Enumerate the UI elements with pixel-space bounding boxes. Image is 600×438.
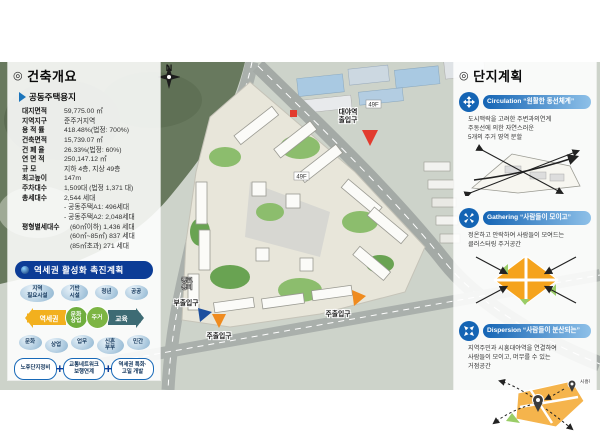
double-circle-icon: ◎ <box>459 69 469 82</box>
bubble: 신혼 부부 <box>97 337 124 354</box>
dispersion-bar: Dispersion “사람들이 분산되는” <box>483 324 591 338</box>
site-plan-title: 단지계획 <box>473 66 523 85</box>
svg-text:주출입구: 주출입구 <box>325 309 351 318</box>
circulation-figure <box>459 144 591 201</box>
bubble: 문화 <box>19 335 42 350</box>
table-row: 건축면적15,739.07 ㎡ <box>22 136 155 146</box>
unit-breakdown: - 공동주택A1: 496세대 <box>64 203 155 213</box>
svg-text:종교: 종교 <box>182 277 193 284</box>
svg-text:출입구: 출입구 <box>339 115 359 124</box>
size-breakdown: (60㎡~85㎡) 837 세대 <box>70 232 155 242</box>
station-figure-label: 시흥대야역 <box>580 378 590 385</box>
table-row: 평형별세대수 (60㎡이하) 1,436 세대 <box>22 223 155 233</box>
presentation-slide: 49F 49F 대야역 출입구 주출입구 주출입구 <box>0 0 600 438</box>
strategy-box: 교통네트워크 보행연계 <box>63 358 106 380</box>
circulation-desc: 도시맥락을 고려한 주변과의연계 주동선에 의한 자연스러운 5개의 주거 영역… <box>468 116 589 143</box>
bubble: 공공 <box>125 285 148 300</box>
flow-left-arrow: 역세권 <box>33 310 66 325</box>
flow-node: 문화 상업 <box>65 306 88 329</box>
site-plan-panel: ◎ 단지계획 Circulation “원활한 동선체계” 도시맥락을 고려한 … <box>454 62 596 390</box>
table-row: 용 적 률418.48%(법정: 700%) <box>22 126 155 136</box>
table-row: 총세대수2,544 세대 <box>22 194 155 204</box>
bubble: 상업 <box>45 338 68 353</box>
north-compass: N <box>158 64 180 73</box>
gathering-icon <box>459 208 479 228</box>
plus-icon: + <box>56 362 64 375</box>
station-plan-header: 역세권 활성화 촉진계획 <box>15 261 153 279</box>
double-circle-icon: ◎ <box>13 69 23 82</box>
strategy-box: 노후단지정비 <box>14 358 57 380</box>
size-breakdown: (85㎡초과) 271 세대 <box>70 242 155 252</box>
svg-text:용지: 용지 <box>182 283 193 291</box>
svg-text:주출입구: 주출입구 <box>206 331 232 340</box>
bubble: 지역 필요시설 <box>20 284 54 302</box>
north-compass-icon <box>158 64 180 90</box>
table-row: 대지면적59,775.00 ㎡ <box>22 107 155 117</box>
station-plan-bottom-bubbles: 문화 상업 업무 신혼 부부 민간 <box>17 334 151 351</box>
table-row: 지역지구준주거지역 <box>22 117 155 127</box>
bubble: 업무 <box>71 335 94 350</box>
table-row: 규 모지하 4층, 지상 49층 <box>22 165 155 175</box>
flow-node: 주거 <box>86 306 109 329</box>
strategy-box: 역세권 특화· 고밀 개발 <box>111 358 154 380</box>
bubble: 기반 시설 <box>61 284 88 301</box>
building-overview-table: 대지면적59,775.00 ㎡ 지역지구준주거지역 용 적 률418.48%(법… <box>22 107 155 252</box>
flow-right-arrow: 교육 <box>108 310 136 325</box>
table-row: 주차대수1,509대 (법정 1,371 대) <box>22 184 155 194</box>
site-plan-header: ◎ 단지계획 <box>459 66 591 85</box>
housing-site-subtitle: 공동주택용지 <box>19 91 155 103</box>
gathering-figure <box>459 251 591 314</box>
triangle-bullet-icon <box>19 92 26 102</box>
gathering-section-header: Gathering “사람들이 모이고” <box>459 208 591 228</box>
glow-dot-icon <box>21 266 29 274</box>
building-overview-panel: ◎ 건축개요 공동주택용지 대지면적59,775.00 ㎡ 지역지구준주거지역 … <box>8 62 160 380</box>
table-row: 건 폐 율26.33%(법정: 60%) <box>22 146 155 156</box>
table-row: 연 면 적250,147.12 ㎡ <box>22 155 155 165</box>
unit-breakdown: - 공동주택A2: 2,048세대 <box>64 213 155 223</box>
dispersion-icon <box>459 321 479 341</box>
gathering-bar: Gathering “사람들이 모이고” <box>483 211 591 225</box>
circulation-section-header: Circulation “원활한 동선체계” <box>459 92 591 112</box>
dispersion-section-header: Dispersion “사람들이 분산되는” <box>459 321 591 341</box>
building-overview-header: ◎ 건축개요 <box>13 66 155 85</box>
circulation-icon <box>459 92 479 112</box>
bubble: 민간 <box>127 335 150 350</box>
bubble: 청년 <box>95 285 118 300</box>
gathering-desc: 정온하고 안락하여 사람들이 모여드는 클러스터링 주거공간 <box>468 232 589 250</box>
svg-text:대야역: 대야역 <box>339 107 358 116</box>
dispersion-desc: 지역주민과 시흥대야역을 연결하여 사람들이 모이고, 머무를 수 있는 거점공… <box>468 345 589 372</box>
svg-text:부출입구: 부출입구 <box>173 298 199 307</box>
svg-text:49F: 49F <box>296 175 307 181</box>
building-overview-title: 건축개요 <box>27 66 77 85</box>
station-plan-top-bubbles: 지역 필요시설 기반 시설 청년 공공 <box>17 284 151 302</box>
svg-text:49F: 49F <box>368 103 379 109</box>
dispersion-figure: 시흥대야역 <box>459 373 591 438</box>
plus-icon: + <box>104 362 112 375</box>
floor-tag: 49F <box>366 100 381 109</box>
floor-tag: 49F <box>294 172 309 181</box>
station-plan-flow-arrow: 역세권 문화 상업 주거 교육 <box>15 305 153 331</box>
station-plan-strategies: 노후단지정비 + 교통네트워크 보행연계 + 역세권 특화· 고밀 개발 <box>14 358 154 380</box>
circulation-bar: Circulation “원활한 동선체계” <box>483 95 591 109</box>
table-row: 최고높이147m <box>22 174 155 184</box>
